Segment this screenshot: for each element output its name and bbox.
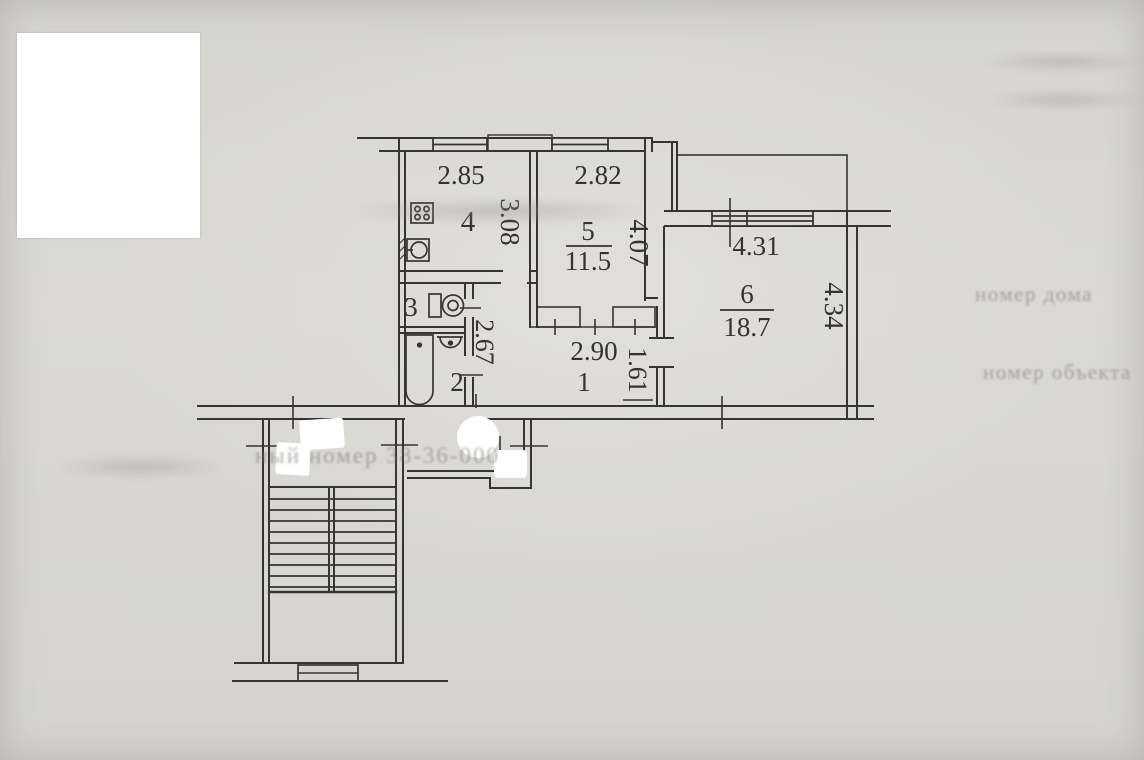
- dim-hall-height: 1.61: [623, 347, 652, 393]
- dim-room6-height: 4.34: [819, 282, 849, 330]
- redaction-patch-large: [17, 33, 200, 238]
- redaction-patch: [275, 442, 311, 476]
- room-2-label: 2: [450, 367, 464, 397]
- room-3-label: 3: [404, 292, 418, 322]
- stairs-icon: [269, 499, 396, 587]
- scanned-floor-plan-page: 2.85 4 3.08 2.82 5 11.5 4.07 4.31 6 18.7…: [0, 0, 1144, 760]
- kitchen-window-icon: [433, 138, 487, 151]
- dim-hall-width: 2.90: [570, 336, 617, 366]
- closet-1: [537, 307, 580, 327]
- closet-2: [613, 307, 655, 327]
- room-5-label: 5: [581, 216, 595, 246]
- bathtub-icon: [406, 335, 433, 405]
- redaction-patch: [457, 416, 499, 458]
- room-6-area: 18.7: [723, 312, 770, 342]
- dim-kitchen-height: 3.08: [495, 198, 525, 245]
- dim-room5-width: 2.82: [574, 160, 621, 190]
- redaction-patch: [494, 450, 527, 478]
- balcony-outline: [677, 155, 847, 211]
- room5-window-icon: [552, 138, 608, 151]
- room-5-area: 11.5: [565, 246, 611, 276]
- room-4-label: 4: [461, 206, 476, 238]
- walls: [198, 138, 890, 419]
- room6-window-icon: [712, 211, 813, 226]
- kitchen-sink-icon: [407, 239, 429, 261]
- entrance-stoop: [298, 665, 358, 681]
- plan-redaction-patches: [275, 416, 527, 478]
- dim-room5-height: 4.07: [624, 219, 654, 266]
- toilet-icon: [429, 294, 464, 317]
- dim-corridor: 2.67: [470, 319, 499, 365]
- room-6-label: 6: [740, 279, 754, 309]
- dim-room6-width: 4.31: [732, 231, 779, 261]
- dim-kitchen-width: 2.85: [437, 160, 484, 190]
- stove-icon: [411, 203, 433, 223]
- room-1-label: 1: [577, 367, 591, 397]
- plan-labels: 2.85 4 3.08 2.82 5 11.5 4.07 4.31 6 18.7…: [404, 160, 849, 397]
- bath-sink-icon: [437, 337, 463, 348]
